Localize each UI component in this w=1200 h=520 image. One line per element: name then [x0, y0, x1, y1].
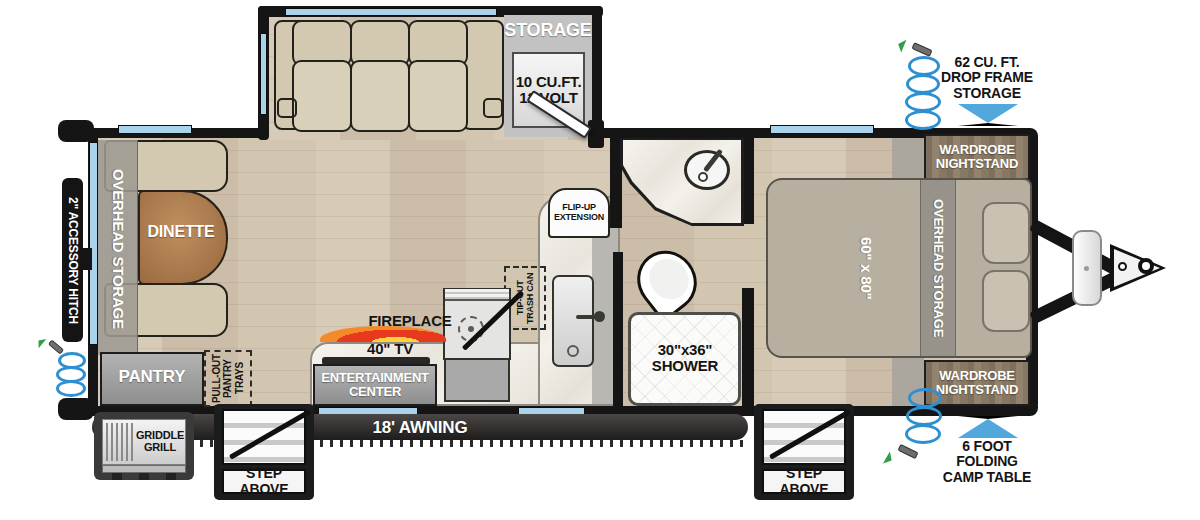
- hitch-ball-ring: [1138, 258, 1154, 274]
- drop-frame-storage-label: 62 CU. FT.DROP FRAMESTORAGE: [932, 52, 1042, 104]
- arrow-down-icon: [958, 104, 1018, 126]
- dinette-label: DINETTE: [138, 222, 224, 242]
- window-rear-left: [89, 142, 98, 345]
- bed-overhead-label: OVERHEAD STORAGE: [920, 184, 956, 352]
- rv-floorplan: { "slideout": { "storage": "STORAGE", "f…: [0, 0, 1200, 520]
- sofa-cupholder-left: [277, 98, 297, 118]
- slideout-window-top: [285, 8, 497, 16]
- arrow-up-icon: [958, 416, 1018, 438]
- griddle-surface: [106, 423, 134, 461]
- griddle-base: [102, 465, 186, 473]
- camp-table-label: 6 FOOTFOLDINGCAMP TABLE: [930, 436, 1044, 488]
- shower-label: 30"x36"SHOWER: [640, 338, 730, 378]
- stove-lid: [445, 289, 509, 301]
- bath-wall-right-lower: [742, 288, 754, 410]
- range-oven: [444, 356, 510, 402]
- sofa-seat-cushion: [408, 60, 468, 132]
- step-right-label: STEP ABOVE: [762, 469, 846, 494]
- storage-label: STORAGE: [504, 20, 592, 42]
- awning-label: 18' AWNING: [300, 419, 540, 437]
- bath-faucet-knob: [698, 172, 708, 182]
- bed-size-label: 60" x 80": [852, 200, 880, 336]
- slideout-window-left: [260, 33, 267, 115]
- pullout-pantry-trays-label: PULL-OUTPANTRYTRAYS: [205, 352, 251, 405]
- propane-tank-valve: [1084, 266, 1089, 271]
- window-bedroom-top: [770, 125, 874, 134]
- window-dinette-top: [118, 125, 192, 134]
- dinette-overhead-label: OVERHEAD STORAGE: [98, 146, 138, 351]
- step-left-label: STEP ABOVE: [222, 469, 306, 494]
- pillow: [982, 270, 1030, 332]
- flip-up-extension-label: FLIP-UPEXTENSION: [548, 198, 610, 228]
- entry-door-jamb: [588, 120, 604, 148]
- pantry-label: PANTRY: [100, 366, 204, 388]
- entertainment-center-label: ENTERTAINMENTCENTER: [313, 368, 437, 402]
- tv-label: 40" TV: [340, 342, 440, 357]
- griddle-grill-label: GRIDDLEGRILL: [134, 428, 186, 456]
- pillow: [982, 202, 1030, 264]
- kitchen-faucet-knob: [594, 311, 605, 322]
- sofa-seat-cushion: [350, 60, 410, 132]
- accessory-hitch-label: 2" ACCESSORY HITCH: [62, 182, 83, 338]
- sofa-seat-cushion: [292, 60, 352, 132]
- griddle-foot: [166, 473, 176, 480]
- griddle-foot: [112, 473, 122, 480]
- sofa-cupholder-right: [483, 98, 503, 118]
- griddle-foot: [139, 473, 149, 480]
- sink-drain: [567, 345, 579, 357]
- bath-wall-left-lower: [613, 252, 623, 408]
- wardrobe-nightstand-top-label: WARDROBENIGHTSTAND: [924, 139, 1030, 175]
- hitch-pin-hole: [1118, 262, 1127, 271]
